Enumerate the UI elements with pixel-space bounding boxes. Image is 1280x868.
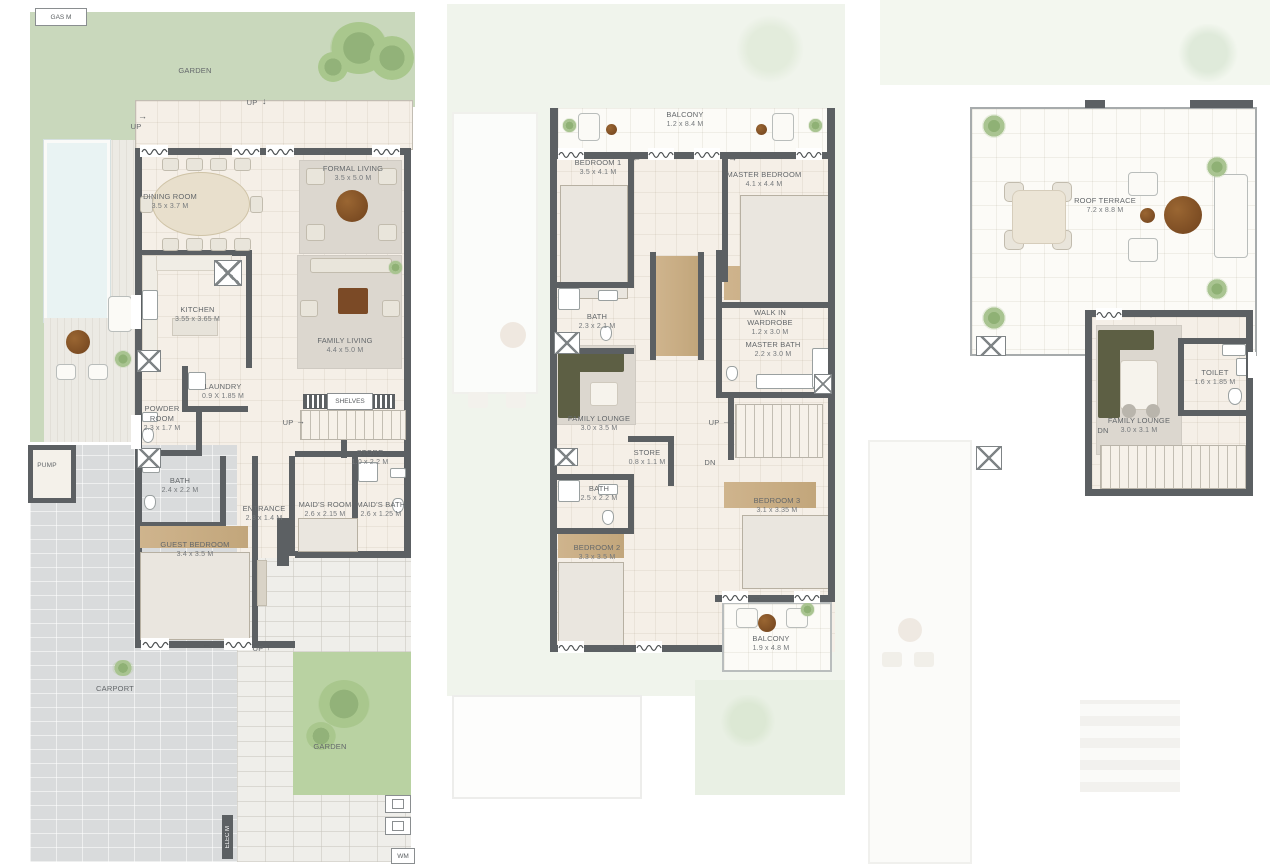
ac-unit — [385, 795, 411, 813]
elec-meter-box: ELEC M — [222, 815, 233, 859]
wall — [1178, 410, 1253, 416]
room-label-bath-2: BATH2.5 x 2.2 M — [568, 484, 630, 503]
window-icon — [372, 145, 400, 157]
balcony-chair — [578, 113, 600, 141]
armchair — [382, 300, 400, 317]
coffee-table — [338, 288, 368, 314]
potted-plant — [114, 350, 132, 368]
toilet — [726, 366, 738, 381]
wall — [628, 474, 634, 534]
wall — [1085, 100, 1105, 108]
room-label-bedroom-2: BEDROOM 23.3 x 3.5 M — [552, 543, 642, 562]
room-label-maids-bath: MAID'S BATH2.6 x 1.25 M — [356, 500, 406, 519]
room-label-bedroom-3: BEDROOM 33.1 x 3.35 M — [732, 496, 822, 515]
sofa — [1098, 330, 1154, 350]
ghost-chair — [914, 652, 934, 667]
garden-top-label: GARDEN — [165, 66, 225, 76]
maid-bed — [298, 518, 358, 552]
closet — [656, 256, 698, 356]
potted-plant — [562, 118, 577, 133]
column-hatch — [814, 374, 832, 394]
balcony-table — [606, 124, 617, 135]
window-icon — [232, 145, 260, 157]
coffee-table — [590, 382, 618, 406]
ghost-table — [500, 322, 526, 348]
wall — [1085, 489, 1253, 496]
bed-3 — [742, 515, 830, 589]
arrow-right-icon: → — [752, 593, 761, 602]
room-label-roof-terrace: ROOF TERRACE7.2 x 8.8 M — [1055, 196, 1155, 215]
ac-unit — [385, 817, 411, 835]
room-label-powder-room: POWDER ROOM2.3 x 1.7 M — [134, 404, 190, 433]
garden-bush — [318, 680, 370, 728]
toilet — [1228, 388, 1242, 405]
wall — [1178, 338, 1184, 416]
room-label-bath-1: BATH2.3 x 2.1 M — [566, 312, 628, 331]
potted-plant — [1206, 156, 1228, 178]
double-sink — [756, 374, 816, 389]
stairs-up-label: UP — [704, 418, 724, 428]
room-label-master-bath: MASTER BATH2.2 x 3.0 M — [740, 340, 806, 359]
ghost-bush — [735, 15, 805, 83]
window-icon — [140, 145, 168, 157]
ghost-chair — [506, 392, 526, 408]
entry-cabinet — [277, 518, 289, 566]
staircase — [1100, 445, 1247, 489]
wall — [550, 108, 558, 152]
patio-table — [66, 330, 90, 354]
coffee-table — [1120, 360, 1158, 410]
room-label-family-lounge-1: FAMILY LOUNGE3.0 x 3.5 M — [556, 414, 642, 433]
room-label-toilet: TOILET1.6 x 1.85 M — [1186, 368, 1244, 387]
column-hatch — [976, 336, 1006, 356]
patio-chair — [56, 364, 76, 380]
garden-bush — [318, 52, 348, 82]
room-label-balcony-2: BALCONY1.9 x 4.8 M — [726, 634, 816, 653]
sofa — [310, 258, 392, 273]
room-label-entrance: ENTRANCE2.8 x 1.4 M — [232, 504, 296, 523]
wall — [246, 250, 252, 368]
wall — [182, 406, 248, 412]
wall — [650, 252, 656, 360]
terrace-round-table — [1164, 196, 1202, 234]
room-label-family-living: FAMILY LIVING4.4 x 5.0 M — [305, 336, 385, 355]
up-label: UP — [248, 644, 268, 654]
arrow-right-icon: → — [138, 112, 147, 121]
wall — [716, 302, 722, 398]
room-label-store-1: STORE0.8 x 1.1 M — [620, 448, 674, 467]
sink — [598, 290, 618, 301]
wall — [550, 528, 634, 534]
column-hatch — [214, 260, 242, 286]
column-hatch — [976, 446, 1002, 470]
staircase — [300, 410, 406, 440]
wall — [1190, 100, 1253, 108]
ghost-table — [898, 618, 922, 642]
arrow-left-icon: ← — [1148, 311, 1157, 320]
wall — [550, 282, 634, 288]
gas-meter-box: GAS M — [35, 8, 87, 26]
ghost-bush — [720, 695, 776, 747]
stairs-dn-label: DN — [700, 458, 720, 468]
balcony-chair — [736, 608, 758, 628]
wall — [716, 250, 722, 308]
arrow-right-icon: → — [322, 147, 331, 156]
shrub — [112, 660, 134, 676]
stove — [142, 290, 158, 320]
ghost-chair — [882, 652, 902, 667]
up-label: UP — [126, 122, 146, 132]
room-label-bedroom-1: BEDROOM 13.5 x 4.1 M — [558, 158, 638, 177]
window-icon — [722, 591, 748, 603]
wall — [550, 152, 557, 652]
window-icon — [636, 641, 662, 653]
carport-pavement — [30, 445, 237, 862]
potted-plant — [982, 114, 1006, 138]
window-icon — [558, 641, 584, 653]
up-label: UP — [240, 98, 264, 108]
column-hatch — [137, 448, 161, 468]
wall — [1178, 338, 1253, 344]
bed-2 — [558, 562, 624, 646]
column-hatch — [137, 350, 161, 372]
potted-plant — [800, 602, 815, 617]
sofa — [558, 352, 624, 372]
room-label-formal-living: FORMAL LIVING3.5 x 5.0 M — [308, 164, 398, 183]
room-label-guest-bedroom: GUEST BEDROOM3.4 x 3.5 M — [140, 540, 250, 559]
potted-plant — [1206, 278, 1228, 300]
toilet — [602, 510, 614, 525]
window-slot — [131, 295, 141, 329]
arrow-left-icon: ← — [202, 640, 211, 649]
toilet — [144, 495, 156, 510]
room-label-laundry: LAUNDRY0.9 X 1.85 M — [192, 382, 254, 401]
ghost-terrace — [452, 695, 642, 799]
formal-living-table — [336, 190, 368, 222]
shelves-box: SHELVES — [327, 393, 373, 410]
patio-deck — [44, 318, 135, 442]
elec-meter-label: ELEC M — [225, 826, 231, 848]
ghost-bush — [1178, 24, 1238, 82]
carport-label: CARPORT — [80, 684, 150, 694]
wall — [550, 474, 634, 480]
garden-bush — [370, 36, 414, 80]
shower — [558, 288, 580, 310]
window-icon — [141, 638, 169, 650]
potted-plant — [388, 260, 403, 275]
balcony-chair — [772, 113, 794, 141]
master-bed — [740, 195, 830, 307]
balcony-table — [756, 124, 767, 135]
potted-plant — [982, 306, 1006, 330]
column-hatch — [554, 332, 580, 354]
window-icon — [694, 148, 720, 160]
floor-plans-canvas: GARDEN GAS M GARDEN CARPORT PUMP — [0, 0, 1280, 868]
room-label-walkin-wardrobe: WALK IN WARDROBE1.2 x 3.0 M — [734, 308, 806, 337]
ghost-pool — [452, 112, 538, 394]
arrow-right-icon: → — [728, 154, 737, 163]
window-slot — [1248, 352, 1256, 378]
room-label-maids-room: MAID'S ROOM2.6 x 2.15 M — [298, 500, 352, 519]
window-icon — [266, 145, 294, 157]
wall — [728, 398, 734, 460]
guest-bed — [140, 552, 250, 640]
arrow-right-icon: → — [296, 417, 305, 426]
room-label-bath: BATH2.4 x 2.2 M — [150, 476, 210, 495]
arrow-left-icon: ← — [612, 643, 621, 652]
wall — [404, 148, 411, 558]
wall — [252, 456, 258, 648]
window-icon — [796, 148, 822, 160]
ghost-stairs — [1080, 700, 1180, 792]
staircase — [735, 404, 823, 458]
wall — [827, 108, 835, 152]
room-label-kitchen: KITCHEN3.55 x 3.65 M — [160, 305, 235, 324]
room-label-balcony-1: BALCONY1.2 x 8.4 M — [640, 110, 730, 129]
room-label-store: STORE1.0 x 2.2 M — [338, 448, 402, 467]
ghost-chair — [468, 392, 488, 408]
pump-room — [28, 445, 76, 503]
arrow-left-icon: ← — [213, 147, 222, 156]
garden-bottom-label: GARDEN — [300, 742, 360, 752]
room-label-master-bedroom: MASTER BEDROOM4.1 x 4.4 M — [716, 170, 812, 189]
wall — [196, 406, 202, 454]
arrow-up-icon: ↑ — [266, 643, 271, 652]
sink — [390, 468, 406, 478]
entry-terrace — [135, 100, 413, 150]
shelf — [1222, 344, 1246, 356]
column-hatch — [554, 448, 578, 466]
wall — [1085, 310, 1092, 496]
console-table — [257, 560, 267, 606]
wm-box: WM — [391, 848, 415, 864]
potted-plant — [808, 118, 823, 133]
vent-grille — [303, 394, 327, 409]
wall — [220, 456, 226, 528]
terrace-bench — [1214, 174, 1248, 258]
window-icon — [648, 148, 674, 160]
vent-grille — [371, 394, 395, 409]
window-icon — [794, 591, 820, 603]
terrace-chair — [1128, 238, 1158, 262]
room-label-roof-family-lounge: FAMILY LOUNGE3.0 x 3.1 M — [1094, 416, 1184, 435]
arrow-down-icon: ↓ — [262, 97, 267, 106]
pump-label: PUMP — [30, 462, 64, 470]
patio-lounger — [108, 296, 132, 332]
arrow-right-icon: → — [722, 417, 731, 426]
patio-chair — [88, 364, 108, 380]
room-label-dining: DINING ROOM3.5 x 3.7 M — [130, 192, 210, 211]
stairs-up-label: UP — [278, 418, 298, 428]
pool — [44, 140, 110, 322]
armchair — [300, 300, 318, 317]
wall — [698, 252, 704, 360]
terrace-chair — [1128, 172, 1158, 196]
balcony-table — [758, 614, 776, 632]
window-icon — [1096, 308, 1122, 320]
